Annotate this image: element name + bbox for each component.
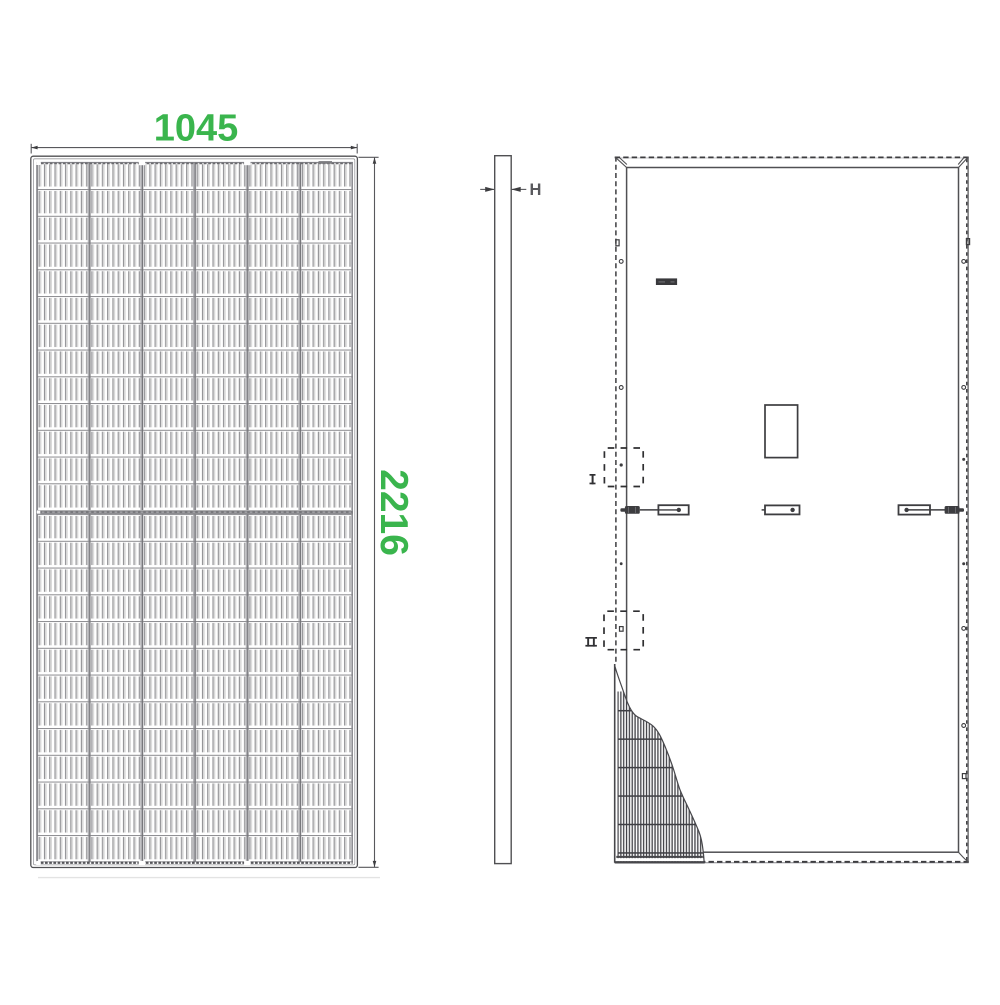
svg-text:1045: 1045 bbox=[154, 108, 239, 150]
svg-text:2216: 2216 bbox=[372, 469, 415, 556]
svg-text:H: H bbox=[530, 181, 542, 199]
